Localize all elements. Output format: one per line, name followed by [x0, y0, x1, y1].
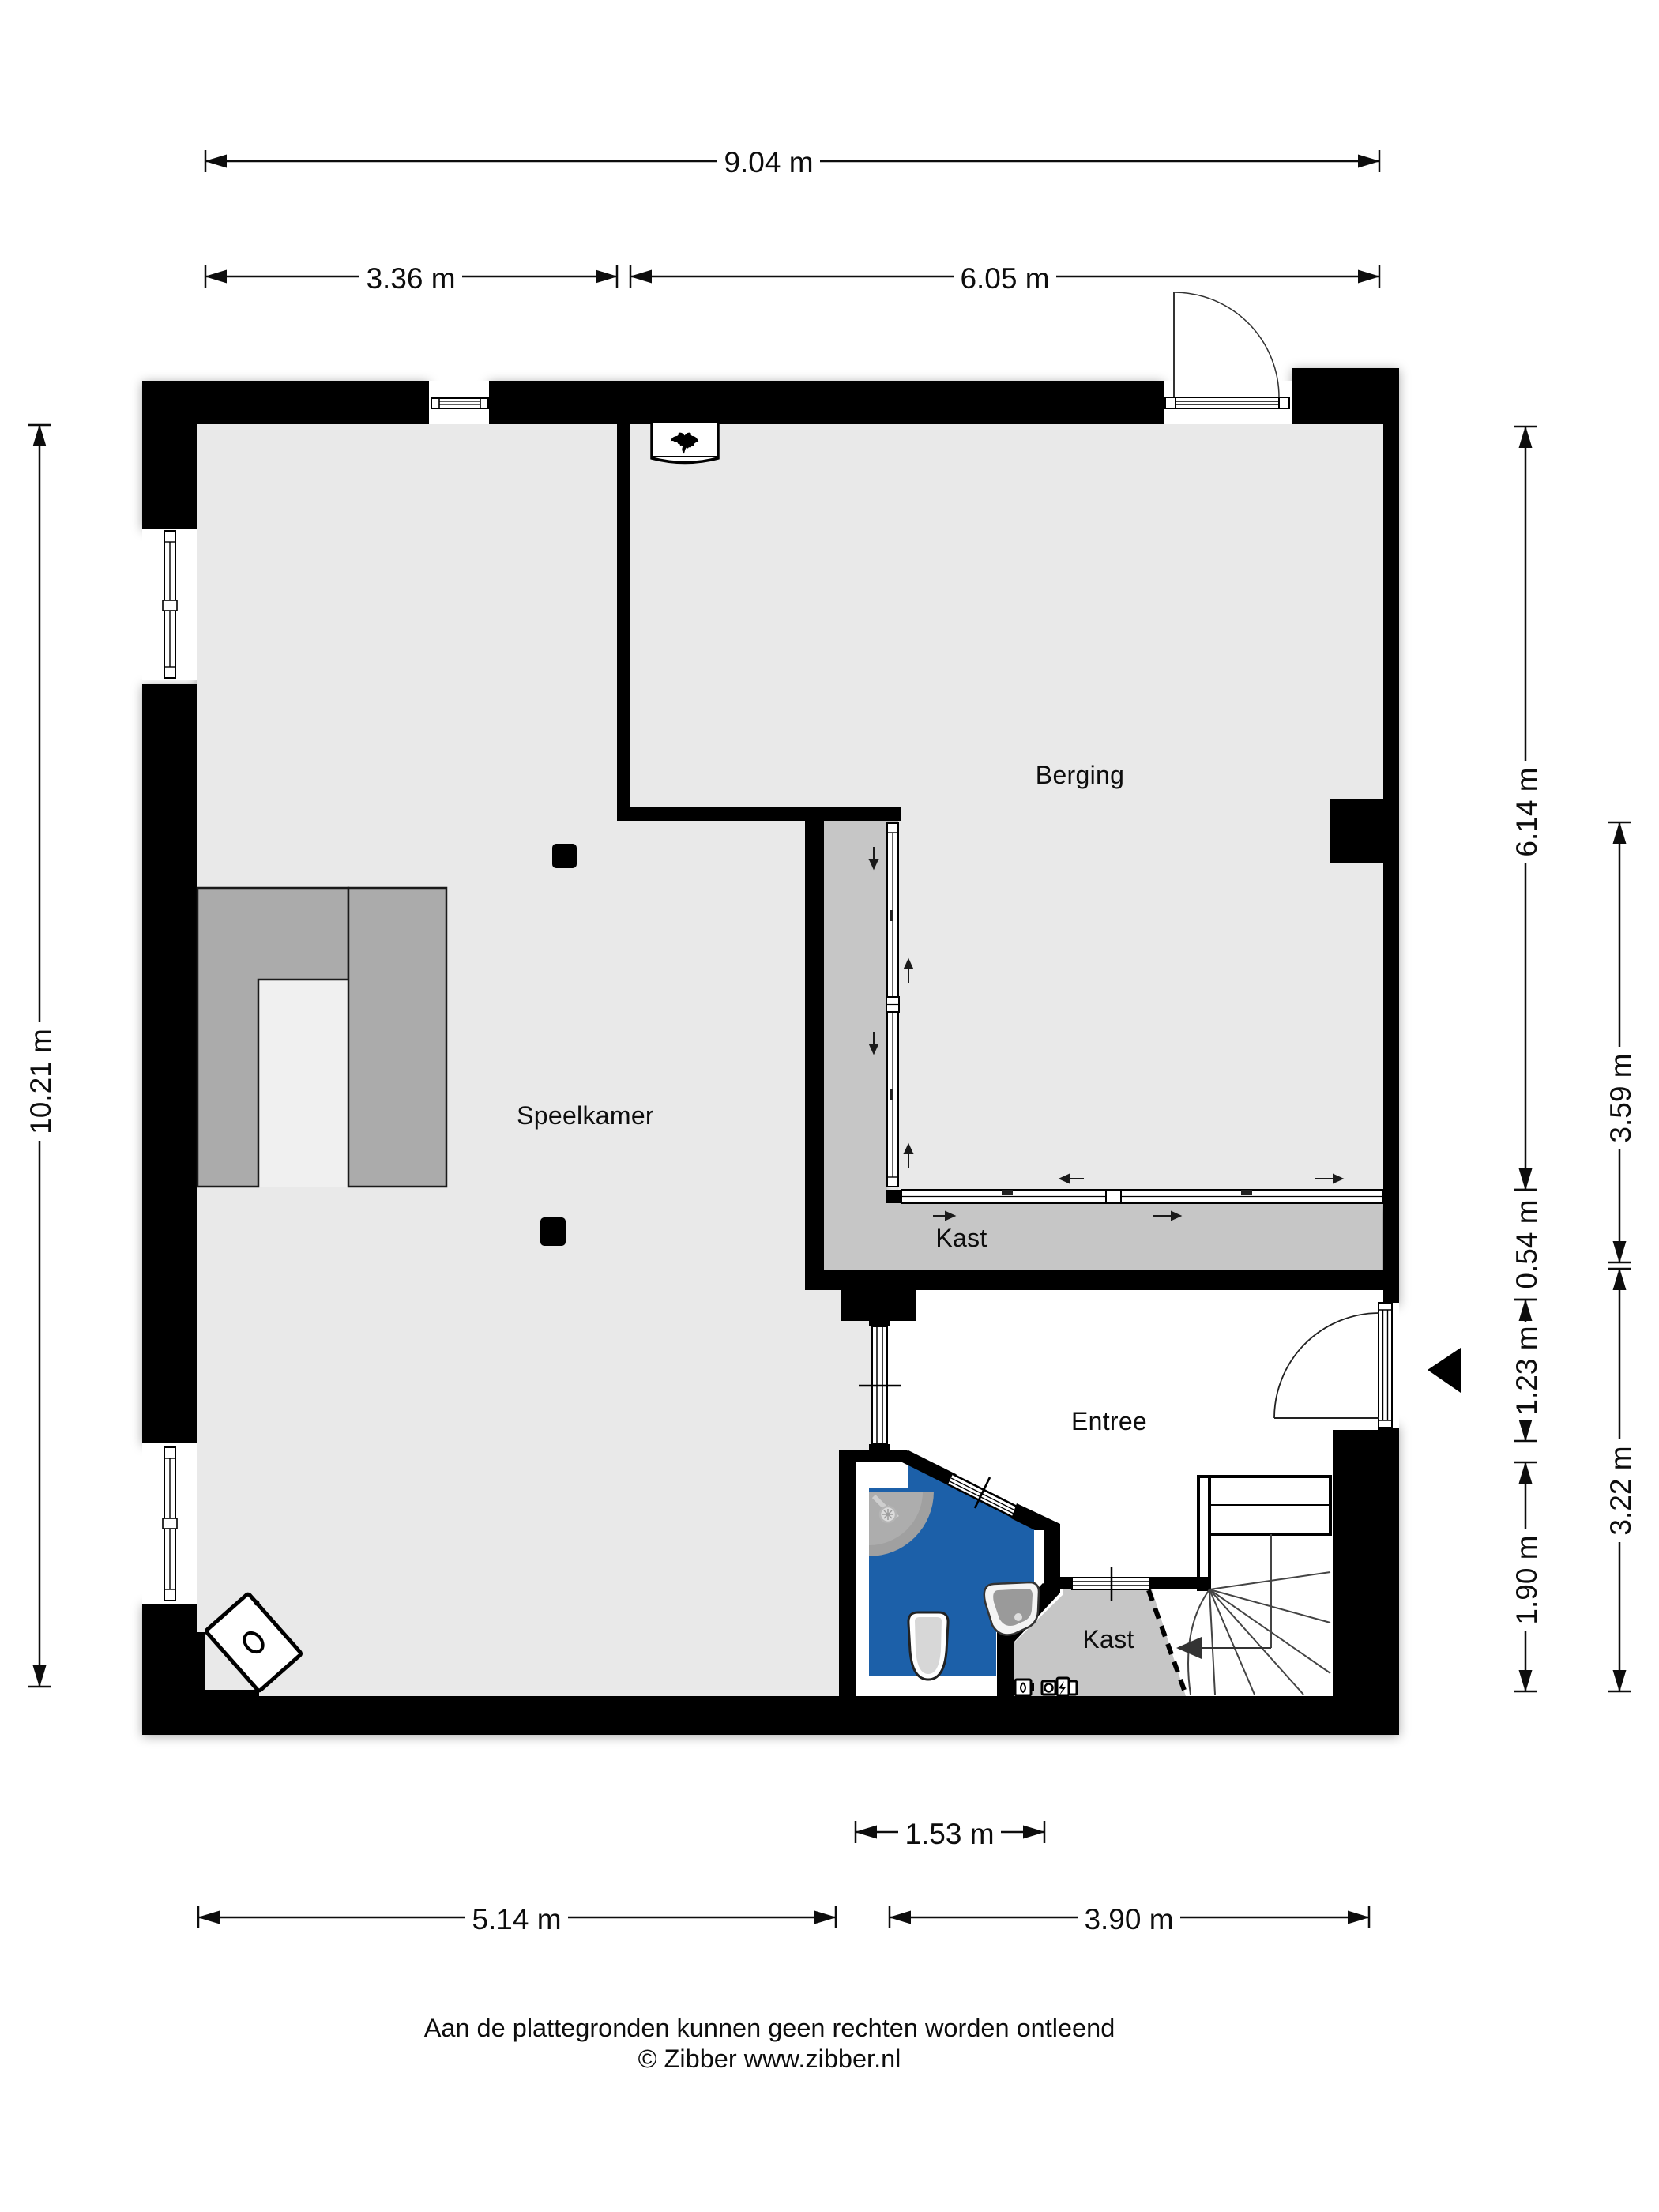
svg-text:Kast: Kast — [935, 1224, 987, 1252]
svg-text:6.14 m: 6.14 m — [1510, 767, 1543, 856]
svg-text:1.53 m: 1.53 m — [905, 1818, 994, 1850]
svg-text:1.23 m: 1.23 m — [1510, 1326, 1543, 1415]
svg-text:0.54 m: 0.54 m — [1510, 1199, 1543, 1288]
svg-text:Entree: Entree — [1071, 1407, 1147, 1435]
svg-text:Berging: Berging — [1036, 761, 1124, 789]
svg-text:9.04 m: 9.04 m — [724, 146, 813, 179]
svg-text:Aan de plattegronden kunnen ge: Aan de plattegronden kunnen geen rechten… — [424, 2014, 1115, 2042]
svg-text:© Zibber www.zibber.nl: © Zibber www.zibber.nl — [638, 2045, 901, 2073]
svg-text:3.59 m: 3.59 m — [1604, 1053, 1637, 1142]
svg-text:Speelkamer: Speelkamer — [517, 1101, 654, 1130]
svg-text:3.22 m: 3.22 m — [1604, 1446, 1637, 1535]
svg-text:1.90 m: 1.90 m — [1510, 1535, 1543, 1624]
svg-text:3.90 m: 3.90 m — [1084, 1903, 1173, 1935]
svg-text:10.21 m: 10.21 m — [24, 1029, 57, 1134]
svg-text:5.14 m: 5.14 m — [472, 1903, 561, 1935]
svg-text:3.36 m: 3.36 m — [366, 262, 455, 295]
svg-text:6.05 m: 6.05 m — [960, 262, 1049, 295]
svg-text:Kast: Kast — [1082, 1625, 1134, 1653]
